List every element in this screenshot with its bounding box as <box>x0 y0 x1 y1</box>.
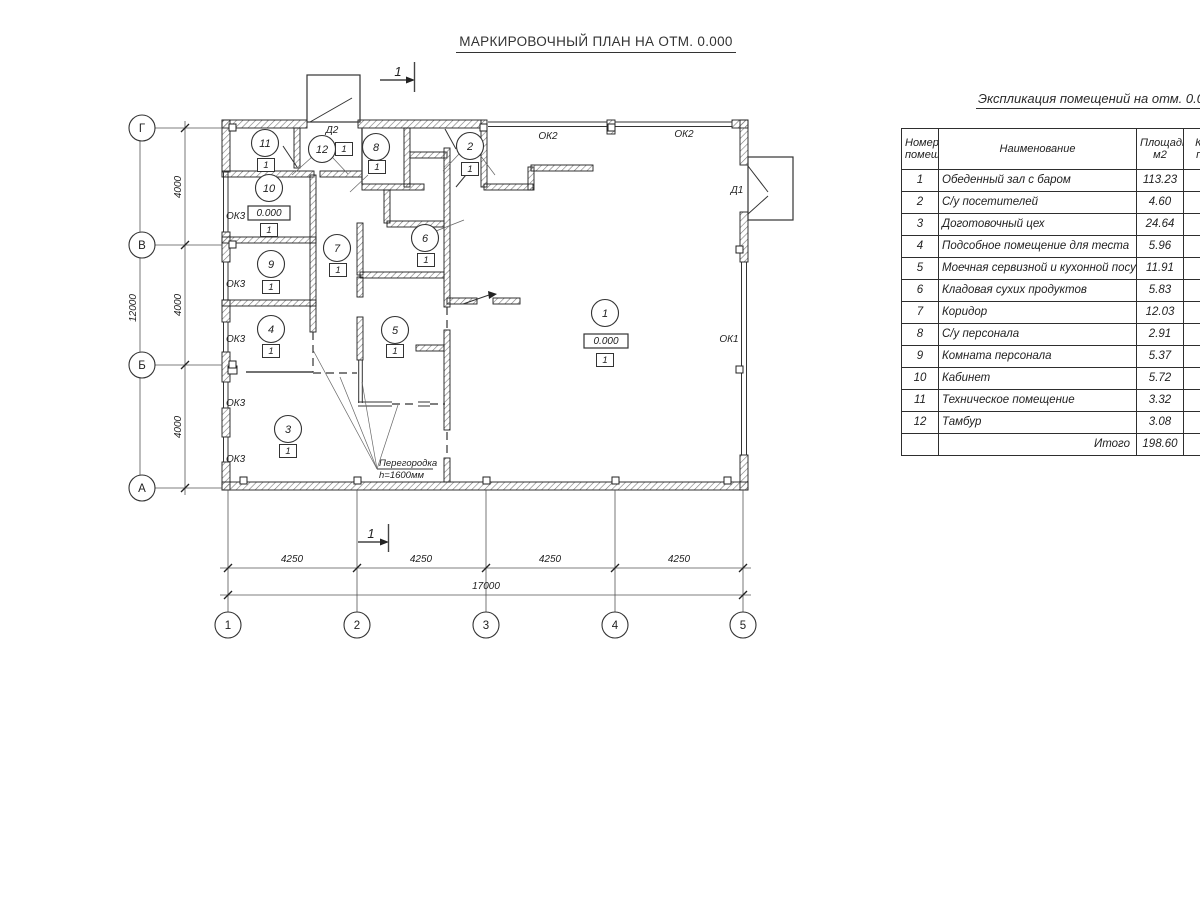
grid-row-label: Б <box>138 360 146 372</box>
room-number: 12 <box>316 144 328 156</box>
cell-area: 5.37 <box>1137 346 1184 368</box>
dim-bottom-total: 17000 <box>472 581 500 592</box>
table-row: 8С/у персонала2.91 <box>902 324 1200 346</box>
room-number: 3 <box>285 424 292 436</box>
cell-num: 7 <box>902 302 939 324</box>
cell-name: Доготовочный цех <box>939 214 1137 236</box>
grid-col-label: 4 <box>612 620 619 632</box>
dim-left-seg: 4000 <box>173 415 184 438</box>
cell-name: С/у посетителей <box>939 192 1137 214</box>
table-row: 4Подсобное помещение для теста5.96 <box>902 236 1200 258</box>
room-number: 11 <box>259 138 270 150</box>
room-number: 10 <box>263 183 276 195</box>
room-number: 7 <box>334 243 341 255</box>
cell-num: 5 <box>902 258 939 280</box>
door-label-d2: Д2 <box>325 125 339 136</box>
table-row: 7Коридор12.03 <box>902 302 1200 324</box>
room-number: 6 <box>422 233 429 245</box>
room-table: Номер помещ. Наименование Площадь, м2 Ка… <box>901 128 1200 456</box>
table-row: 10Кабинет5.72 <box>902 368 1200 390</box>
col-header-area: Площадь, м2 <box>1137 129 1184 170</box>
section-label: 1 <box>394 64 401 79</box>
cell-area: 4.60 <box>1137 192 1184 214</box>
room-number: 5 <box>392 325 399 337</box>
partition-note-line2: h=1600мм <box>379 470 424 481</box>
cell-cat <box>1184 324 1200 346</box>
cell-area: 2.91 <box>1137 324 1184 346</box>
door-label-d1: Д1 <box>730 185 744 196</box>
cell-num: 11 <box>902 390 939 412</box>
cell-area: 5.72 <box>1137 368 1184 390</box>
cell-name: С/у персонала <box>939 324 1137 346</box>
dim-bottom-seg: 4250 <box>410 554 433 565</box>
window-label-ok3: ОК3 <box>226 454 246 465</box>
floor-type: 1 <box>268 282 273 293</box>
grid-axis-col-labels: 1 2 3 4 5 <box>215 612 756 638</box>
cell-num: 10 <box>902 368 939 390</box>
entrance-porch-right <box>748 157 793 220</box>
cell-cat <box>1184 214 1200 236</box>
cell-num: 3 <box>902 214 939 236</box>
floor-type: 1 <box>266 225 271 236</box>
window-label-ok2: ОК2 <box>674 129 694 140</box>
dim-left-seg: 4000 <box>173 175 184 198</box>
cell-area: 11.91 <box>1137 258 1184 280</box>
cell-num: 8 <box>902 324 939 346</box>
section-mark-bottom: 1 <box>358 524 389 552</box>
room-number: 9 <box>268 259 274 271</box>
elevation-mark: 0.000 <box>593 336 618 347</box>
leader-lines <box>292 154 495 469</box>
partition-note-line1: Перегородка <box>379 458 437 469</box>
section-mark-top: 1 <box>380 62 415 92</box>
explication-table-wrap: Номер помещ. Наименование Площадь, м2 Ка… <box>901 128 1200 474</box>
table-total-row: Итого 198.60 <box>902 434 1200 456</box>
dim-left-seg: 4000 <box>173 293 184 316</box>
cell-area: 12.03 <box>1137 302 1184 324</box>
cell-name: Техническое помещение <box>939 390 1137 412</box>
grid-row-label: А <box>138 483 146 495</box>
grid-row-label: Г <box>139 123 146 135</box>
serving-hatch-arrow <box>463 291 497 304</box>
explication-title-text: Экспликация помещений на отм. 0.000 <box>976 91 1200 109</box>
cell-name: Комната персонала <box>939 346 1137 368</box>
cell-num: 2 <box>902 192 939 214</box>
floor-type: 1 <box>423 255 428 266</box>
cell-cat <box>1184 236 1200 258</box>
cell-name: Коридор <box>939 302 1137 324</box>
window-label-ok3: ОК3 <box>226 398 246 409</box>
cell-name: Обеденный зал с баром <box>939 170 1137 192</box>
cell-area: 3.32 <box>1137 390 1184 412</box>
floor-type: 1 <box>335 265 340 276</box>
elevation-mark: 0.000 <box>256 208 281 219</box>
cell-cat <box>1184 346 1200 368</box>
cell-area: 113.23 <box>1137 170 1184 192</box>
floor-type: 1 <box>341 144 346 155</box>
cell-name: Тамбур <box>939 412 1137 434</box>
table-header-row: Номер помещ. Наименование Площадь, м2 Ка… <box>902 129 1200 170</box>
table-row: 2С/у посетителей4.60 <box>902 192 1200 214</box>
table-row: 3Доготовочный цех24.64 <box>902 214 1200 236</box>
dimension-lines: 12000 4000 4000 4000 4250 4250 4250 4250… <box>128 121 751 612</box>
cell-cat <box>1184 280 1200 302</box>
cell-name: Подсобное помещение для теста <box>939 236 1137 258</box>
grid-col-label: 5 <box>740 620 746 632</box>
table-row: 6Кладовая сухих продуктов5.83 <box>902 280 1200 302</box>
cell-area: 5.83 <box>1137 280 1184 302</box>
dim-left-total: 12000 <box>128 294 139 322</box>
cell-cat <box>1184 368 1200 390</box>
window-label-ok3: ОК3 <box>226 279 246 290</box>
cell-num: 4 <box>902 236 939 258</box>
cell-name: Кладовая сухих продуктов <box>939 280 1137 302</box>
grid-row-label: В <box>138 240 146 252</box>
cell-num: 9 <box>902 346 939 368</box>
cell-num: 12 <box>902 412 939 434</box>
dim-bottom-seg: 4250 <box>539 554 562 565</box>
section-label: 1 <box>367 526 374 541</box>
col-header-number: Номер помещ. <box>902 129 939 170</box>
window-label-ok3: ОК3 <box>226 334 246 345</box>
cell-cat <box>1184 258 1200 280</box>
total-value: 198.60 <box>1137 434 1184 456</box>
floor-type: 1 <box>467 164 472 175</box>
floor-type: 1 <box>392 346 397 357</box>
room-table-body: 1Обеденный зал с баром113.232С/у посетит… <box>902 170 1200 434</box>
room-number: 2 <box>466 141 473 153</box>
room-number: 1 <box>602 308 608 320</box>
dim-bottom-seg: 4250 <box>281 554 304 565</box>
room-number: 8 <box>373 142 380 154</box>
cell-name: Кабинет <box>939 368 1137 390</box>
table-row: 1Обеденный зал с баром113.23 <box>902 170 1200 192</box>
table-row: 11Техническое помещение3.32 <box>902 390 1200 412</box>
col-header-category: Кат. пом. <box>1184 129 1200 170</box>
cell-area: 5.96 <box>1137 236 1184 258</box>
explication-title: Экспликация помещений на отм. 0.000 <box>976 90 1200 109</box>
grid-col-label: 1 <box>225 620 231 632</box>
cell-cat <box>1184 390 1200 412</box>
table-row: 9Комната персонала5.37 <box>902 346 1200 368</box>
table-row: 12Тамбур3.08 <box>902 412 1200 434</box>
floor-type: 1 <box>374 162 379 173</box>
grid-col-label: 2 <box>354 620 360 632</box>
total-label: Итого <box>939 434 1137 456</box>
floor-type: 1 <box>268 346 273 357</box>
cell-cat <box>1184 170 1200 192</box>
floor-plan-drawing: Перегородка h=1600мм 12000 4000 4000 400… <box>0 0 850 660</box>
cell-area: 24.64 <box>1137 214 1184 236</box>
total-empty-cell <box>902 434 939 456</box>
window-label-ok1: ОК1 <box>719 334 738 345</box>
cell-cat <box>1184 412 1200 434</box>
entrance-tambour-top <box>307 75 360 122</box>
total-cat-cell <box>1184 434 1200 456</box>
table-row: 5Моечная сервизной и кухонной посуды11.9… <box>902 258 1200 280</box>
cell-name: Моечная сервизной и кухонной посуды <box>939 258 1137 280</box>
floor-type: 1 <box>285 446 290 457</box>
window-label-ok2: ОК2 <box>538 131 558 142</box>
floor-type: 1 <box>263 160 268 171</box>
floor-type: 1 <box>602 355 607 366</box>
cell-cat <box>1184 192 1200 214</box>
room-number: 4 <box>268 324 274 336</box>
cell-num: 1 <box>902 170 939 192</box>
col-header-name: Наименование <box>939 129 1137 170</box>
cell-num: 6 <box>902 280 939 302</box>
dim-bottom-seg: 4250 <box>668 554 691 565</box>
grid-col-label: 3 <box>483 620 489 632</box>
cell-cat <box>1184 302 1200 324</box>
window-label-ok3: ОК3 <box>226 211 246 222</box>
cell-area: 3.08 <box>1137 412 1184 434</box>
